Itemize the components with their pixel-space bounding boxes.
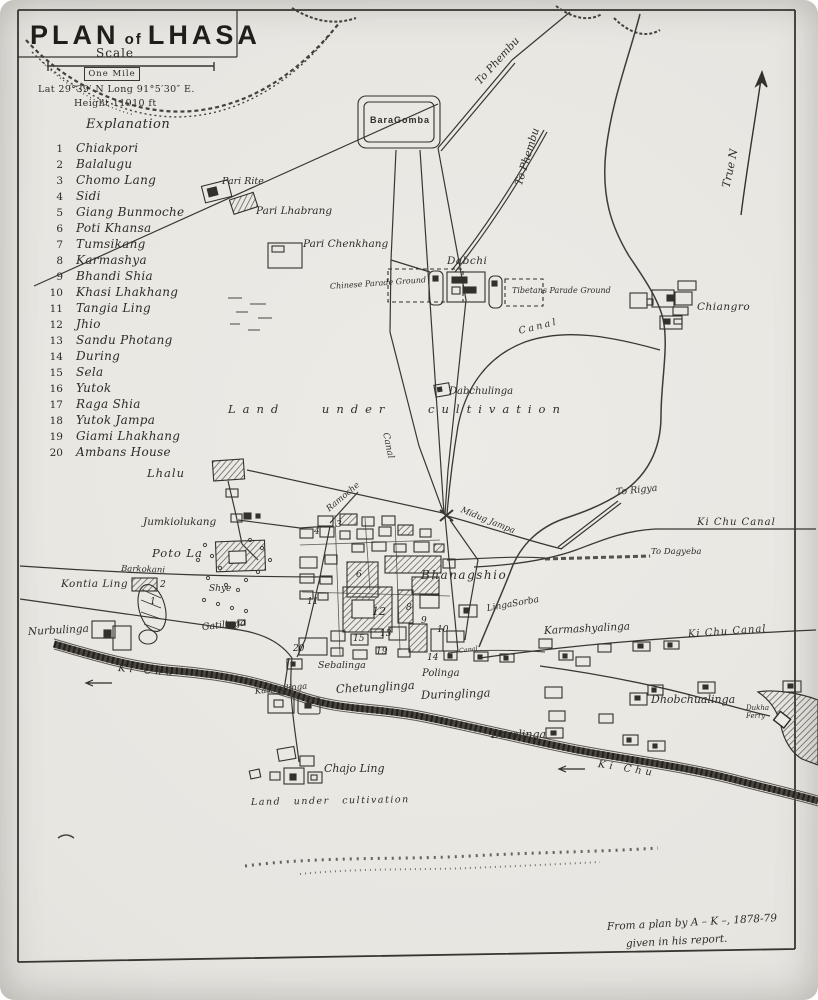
map-number-marker: 19 bbox=[376, 648, 387, 657]
map-number-marker: 14 bbox=[427, 654, 438, 663]
label-poto-la: Poto La bbox=[152, 548, 203, 560]
label-duringlinga: Duringlinga bbox=[421, 688, 491, 702]
explanation-list: 1Chiakpori 2Balalugu 3Chomo Lang 4Sidi 5… bbox=[46, 141, 184, 461]
legend-item: 17Raga Shia bbox=[46, 397, 184, 413]
legend-item: 18Yutok Jampa bbox=[46, 413, 184, 429]
label-ki-chu-canal-upper: Ki Chu Canal bbox=[697, 518, 776, 528]
legend-item: 14During bbox=[46, 349, 184, 365]
legend-item: 2Balalugu bbox=[46, 157, 184, 173]
map-number-marker: 1 bbox=[150, 598, 156, 607]
scale-label: Scale bbox=[96, 46, 134, 60]
map-number-marker: 11 bbox=[307, 598, 318, 607]
legend-item: 1Chiakpori bbox=[46, 141, 184, 157]
label-bara-gomba: BaraGomba bbox=[370, 116, 430, 125]
label-tibetans-parade-ground: Tibetans Parade Ground bbox=[512, 287, 611, 295]
legend-item: 13Sandu Photang bbox=[46, 333, 184, 349]
label-dabchulinga: Dabchulinga bbox=[449, 387, 513, 397]
label-sebalinga: Sebalinga bbox=[318, 661, 366, 671]
label-dukha-ferry: Dukha Ferry bbox=[746, 704, 780, 720]
buildings bbox=[92, 96, 801, 784]
label-barkokani: Barkokani bbox=[121, 565, 165, 575]
label-lhalu: Lhalu bbox=[147, 468, 185, 480]
legend-item: 15Sela bbox=[46, 365, 184, 381]
north-arrow bbox=[741, 72, 767, 215]
map-number-marker: 20 bbox=[293, 645, 304, 654]
label-chiangro: Chiangro bbox=[697, 302, 750, 313]
label-pari-rite: Pari Rite bbox=[222, 177, 264, 187]
map-number-marker: 6 bbox=[356, 571, 362, 580]
legend-item: 5Giang Bunmoche bbox=[46, 205, 184, 221]
legend-item: 6Poti Khansa bbox=[46, 221, 184, 237]
dukha-ferry-bank bbox=[758, 691, 818, 765]
label-jumkiolukang: Jumkiolukang bbox=[143, 517, 216, 528]
label-dorolinga: Dorolinga bbox=[491, 729, 546, 740]
legend-item: 4Sidi bbox=[46, 189, 184, 205]
map-number-marker: 12 bbox=[372, 606, 386, 617]
map-number-marker: 13 bbox=[380, 630, 391, 639]
label-pari-lhabrang: Pari Lhabrang bbox=[256, 206, 332, 217]
map-number-marker: 2 bbox=[160, 581, 166, 590]
legend-item: 12Jhio bbox=[46, 317, 184, 333]
scanned-map-page: PLAN of LHASA Scale One Mile Lat 29°39′ … bbox=[0, 0, 818, 1000]
map-number-marker: 9 bbox=[421, 617, 427, 626]
label-to-dagyeba: To Dagyeba bbox=[651, 548, 702, 557]
label-dabchi: Dabchi bbox=[447, 256, 487, 267]
legend-item: 8Karmashya bbox=[46, 253, 184, 269]
label-shye: Shye bbox=[209, 585, 231, 594]
legend-item: 9Bhandi Shia bbox=[46, 269, 184, 285]
map-number-marker: 4 bbox=[314, 528, 320, 537]
label-dhobchualinga: Dhobchualinga bbox=[651, 694, 735, 705]
lat-long: Lat 29°39′ N Long 91°5′30″ E. bbox=[38, 84, 195, 95]
height-note: Height 11910 ft bbox=[74, 98, 157, 109]
legend-item: 3Chomo Lang bbox=[46, 173, 184, 189]
legend-item: 19Giami Lhakhang bbox=[46, 429, 184, 445]
label-bhanagshio: Bhanagshio bbox=[421, 569, 507, 581]
map-number-marker: 10 bbox=[437, 626, 448, 635]
legend-item: 7Tumsikang bbox=[46, 237, 184, 253]
label-chajo-ling: Chajo Ling bbox=[324, 763, 385, 774]
map-number-marker: 15 bbox=[353, 635, 364, 644]
legend-item: 20Ambans House bbox=[46, 445, 184, 461]
label-polinga: Polinga bbox=[422, 669, 460, 679]
label-pari-chenkhang: Pari Chenkhang bbox=[303, 239, 388, 250]
legend-item: 16Yutok bbox=[46, 381, 184, 397]
map-title: PLAN of LHASA bbox=[30, 20, 261, 51]
scale-unit: One Mile bbox=[84, 67, 140, 81]
legend-item: 10Khasi Lhakhang bbox=[46, 285, 184, 301]
title-word-lhasa: LHASA bbox=[148, 20, 261, 50]
explanation-heading: Explanation bbox=[86, 117, 170, 132]
label-kontia-ling: Kontia Ling bbox=[61, 579, 128, 590]
label-land-under-cultivation-center: Land under cultivation bbox=[228, 404, 567, 416]
legend-item: 11Tangia Ling bbox=[46, 301, 184, 317]
map-number-marker: 3 bbox=[336, 521, 342, 530]
map-number-marker: 8 bbox=[406, 604, 412, 613]
